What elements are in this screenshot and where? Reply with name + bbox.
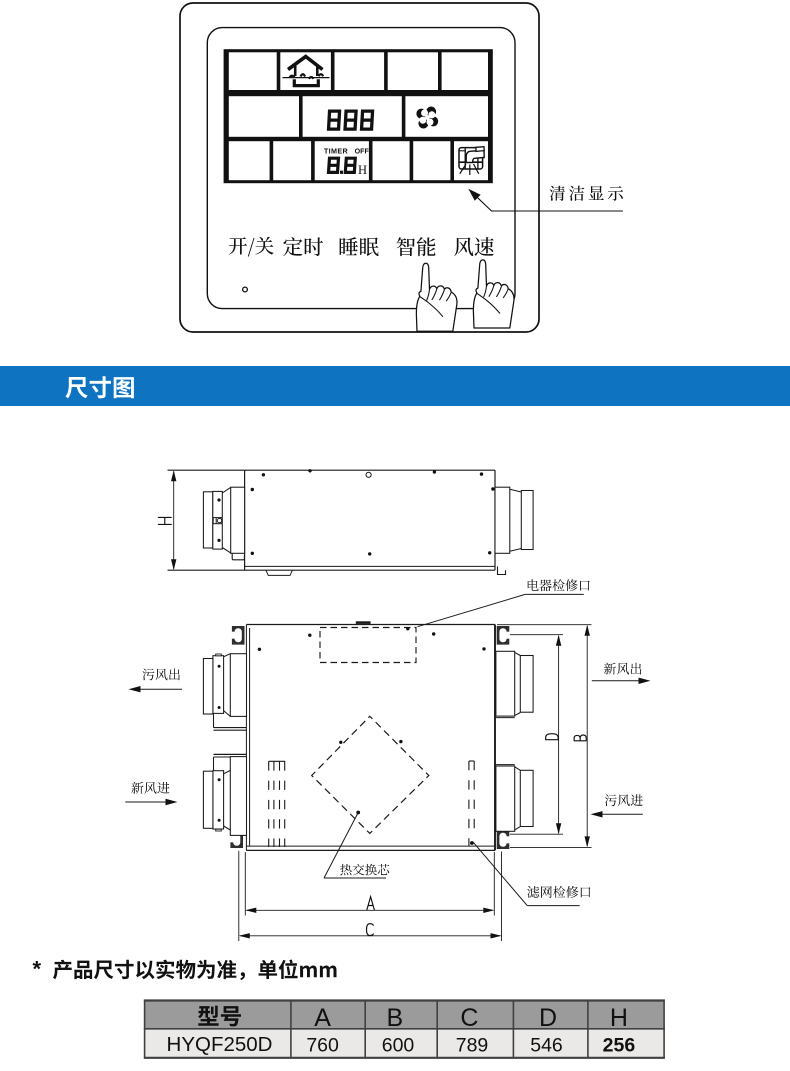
svg-text:B: B <box>387 1004 404 1032</box>
svg-text:D: D <box>539 1004 557 1032</box>
svg-text:C: C <box>460 1004 478 1032</box>
svg-text:HYQF250D: HYQF250D <box>167 1033 273 1056</box>
svg-text:600: 600 <box>382 1034 415 1056</box>
svg-text:H: H <box>610 1004 628 1032</box>
svg-text:760: 760 <box>306 1034 339 1056</box>
svg-text:A: A <box>314 1004 331 1032</box>
svg-text:H: H <box>358 163 367 177</box>
svg-text:546: 546 <box>530 1034 563 1056</box>
svg-text:TIMER: TIMER <box>324 147 349 156</box>
svg-text:789: 789 <box>456 1034 489 1056</box>
svg-text:OFF: OFF <box>355 148 370 156</box>
svg-text:*: * <box>33 957 42 982</box>
svg-text:256: 256 <box>603 1034 636 1056</box>
